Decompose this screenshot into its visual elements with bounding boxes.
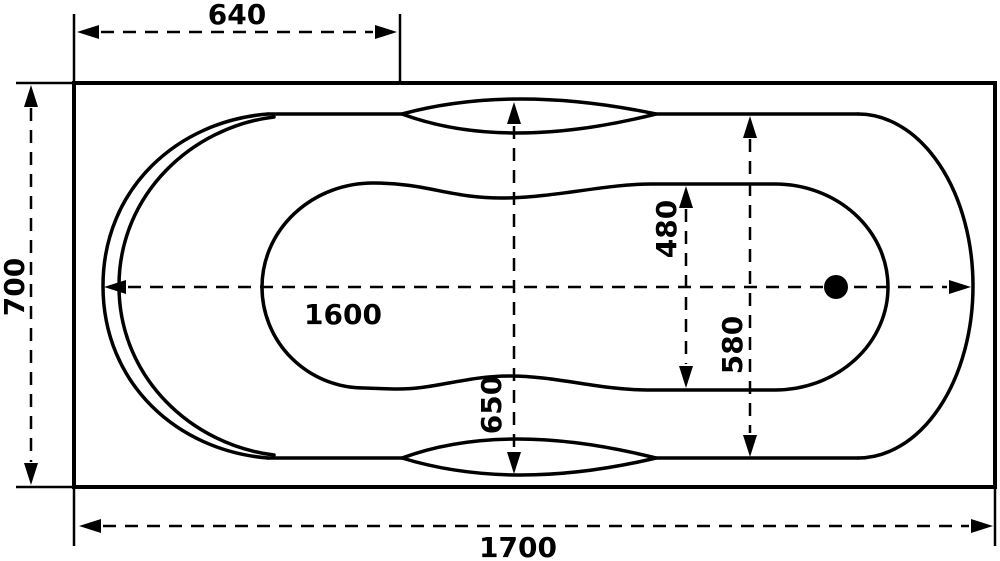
arrowhead-right-icon [971,519,993,533]
dimension-label: 640 [208,0,266,31]
dimension-label: 1700 [479,531,557,561]
bathtub-top-view-drawing: 640 700 1600 650 480 580 [0,0,1000,561]
dimension-640: 640 [74,0,400,83]
arrowhead-up-icon [743,116,757,138]
outer-frame [74,83,995,487]
arrowhead-right-icon [949,280,971,294]
arrowhead-right-icon [375,25,397,39]
dimension-label: 650 [475,376,508,434]
dimension-label: 700 [0,258,31,316]
rim-lens-bottom [402,439,656,475]
dimension-label: 580 [716,316,749,374]
arrowhead-down-icon [24,463,38,485]
drawing-page: 640 700 1600 650 480 580 [0,0,1000,561]
rim-lens-top [402,99,656,133]
dimension-label: 1600 [304,298,382,331]
dimension-1700: 1700 [74,489,995,561]
arrowhead-down-icon [507,452,521,474]
arrowhead-down-icon [679,366,693,388]
arrowhead-left-icon [77,25,99,39]
arrowhead-left-icon [79,519,101,533]
arrowhead-left-icon [104,280,126,294]
arrowhead-up-icon [24,85,38,107]
arrowhead-down-icon [743,435,757,457]
dimension-label: 480 [650,200,683,258]
dimension-700: 700 [0,83,72,487]
dimension-1600: 1600 [104,280,971,331]
arrowhead-up-icon [507,102,521,124]
